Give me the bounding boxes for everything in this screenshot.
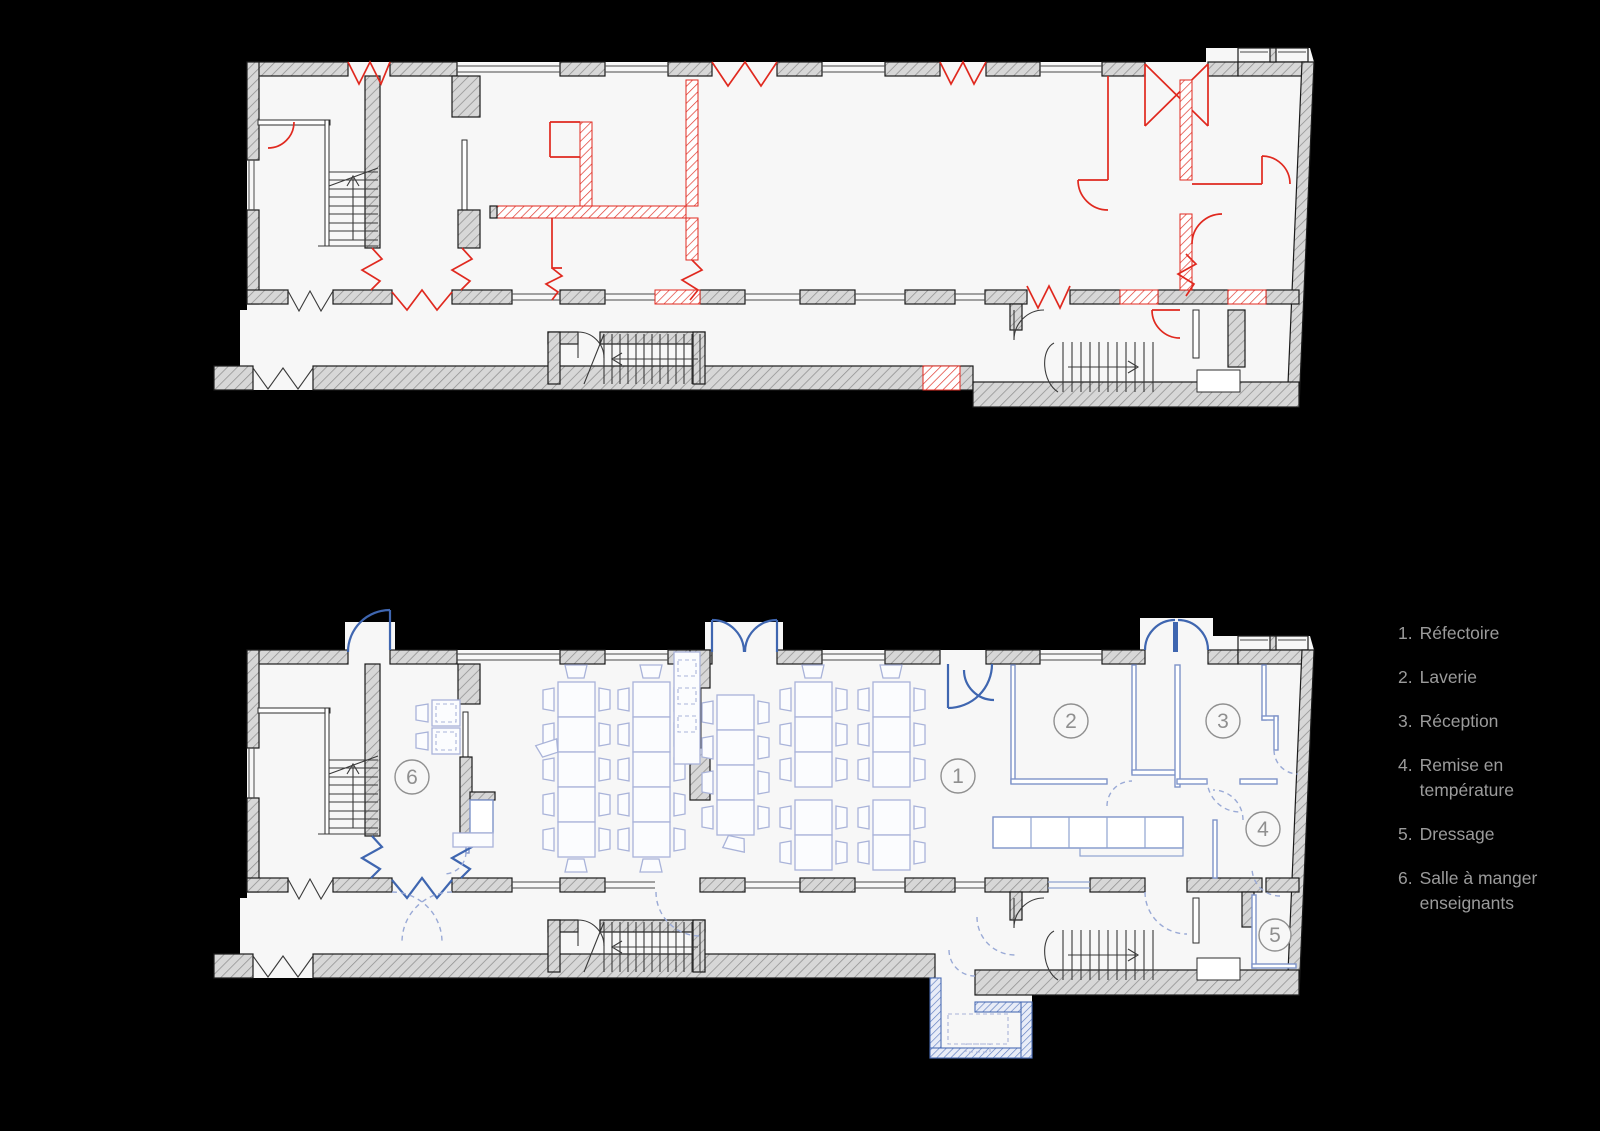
legend-item-label: Salle à manger enseignants xyxy=(1420,866,1570,916)
room-marker-6: 6 xyxy=(395,760,429,794)
svg-text:4: 4 xyxy=(1257,818,1269,841)
legend-item-label: Réfectoire xyxy=(1420,621,1500,646)
room-marker-2: 2 xyxy=(1054,704,1088,738)
svg-text:3: 3 xyxy=(1217,710,1229,733)
legend-item-number: 4. xyxy=(1398,753,1413,803)
legend-item-number: 2. xyxy=(1398,665,1413,690)
legend-item-label: Remise en température xyxy=(1420,753,1570,803)
floor-plan-drawing: 1 2 3 4 5 6 1. Réfectoire 2. Laverie 3. … xyxy=(0,0,1600,1131)
legend-item-label: Réception xyxy=(1420,709,1499,734)
room-marker-4: 4 xyxy=(1246,812,1280,846)
room-marker-1: 1 xyxy=(941,759,975,793)
svg-text:2: 2 xyxy=(1065,710,1077,733)
legend-item-2: 2. Laverie xyxy=(1398,665,1570,690)
legend-item-5: 5. Dressage xyxy=(1398,822,1570,847)
plans-canvas: 1 2 3 4 5 6 xyxy=(0,0,1600,1131)
legend-item-number: 5. xyxy=(1398,822,1413,847)
legend-item-number: 1. xyxy=(1398,621,1413,646)
svg-text:1: 1 xyxy=(952,765,964,788)
demolition-plan xyxy=(214,48,1314,407)
legend-item-6: 6. Salle à manger enseignants xyxy=(1398,866,1570,916)
room-marker-3: 3 xyxy=(1206,704,1240,738)
room-marker-5: 5 xyxy=(1259,919,1291,951)
legend-item-1: 1. Réfectoire xyxy=(1398,621,1570,646)
legend-item-label: Dressage xyxy=(1420,822,1495,847)
project-plan: 1 2 3 4 5 6 xyxy=(214,610,1314,1058)
legend-item-3: 3. Réception xyxy=(1398,709,1570,734)
legend-item-label: Laverie xyxy=(1420,665,1477,690)
legend-item-4: 4. Remise en température xyxy=(1398,753,1570,803)
legend-item-number: 6. xyxy=(1398,866,1413,916)
legend-item-number: 3. xyxy=(1398,709,1413,734)
svg-text:6: 6 xyxy=(406,766,418,789)
legend: 1. Réfectoire 2. Laverie 3. Réception 4.… xyxy=(1398,621,1570,935)
svg-text:5: 5 xyxy=(1269,924,1281,947)
